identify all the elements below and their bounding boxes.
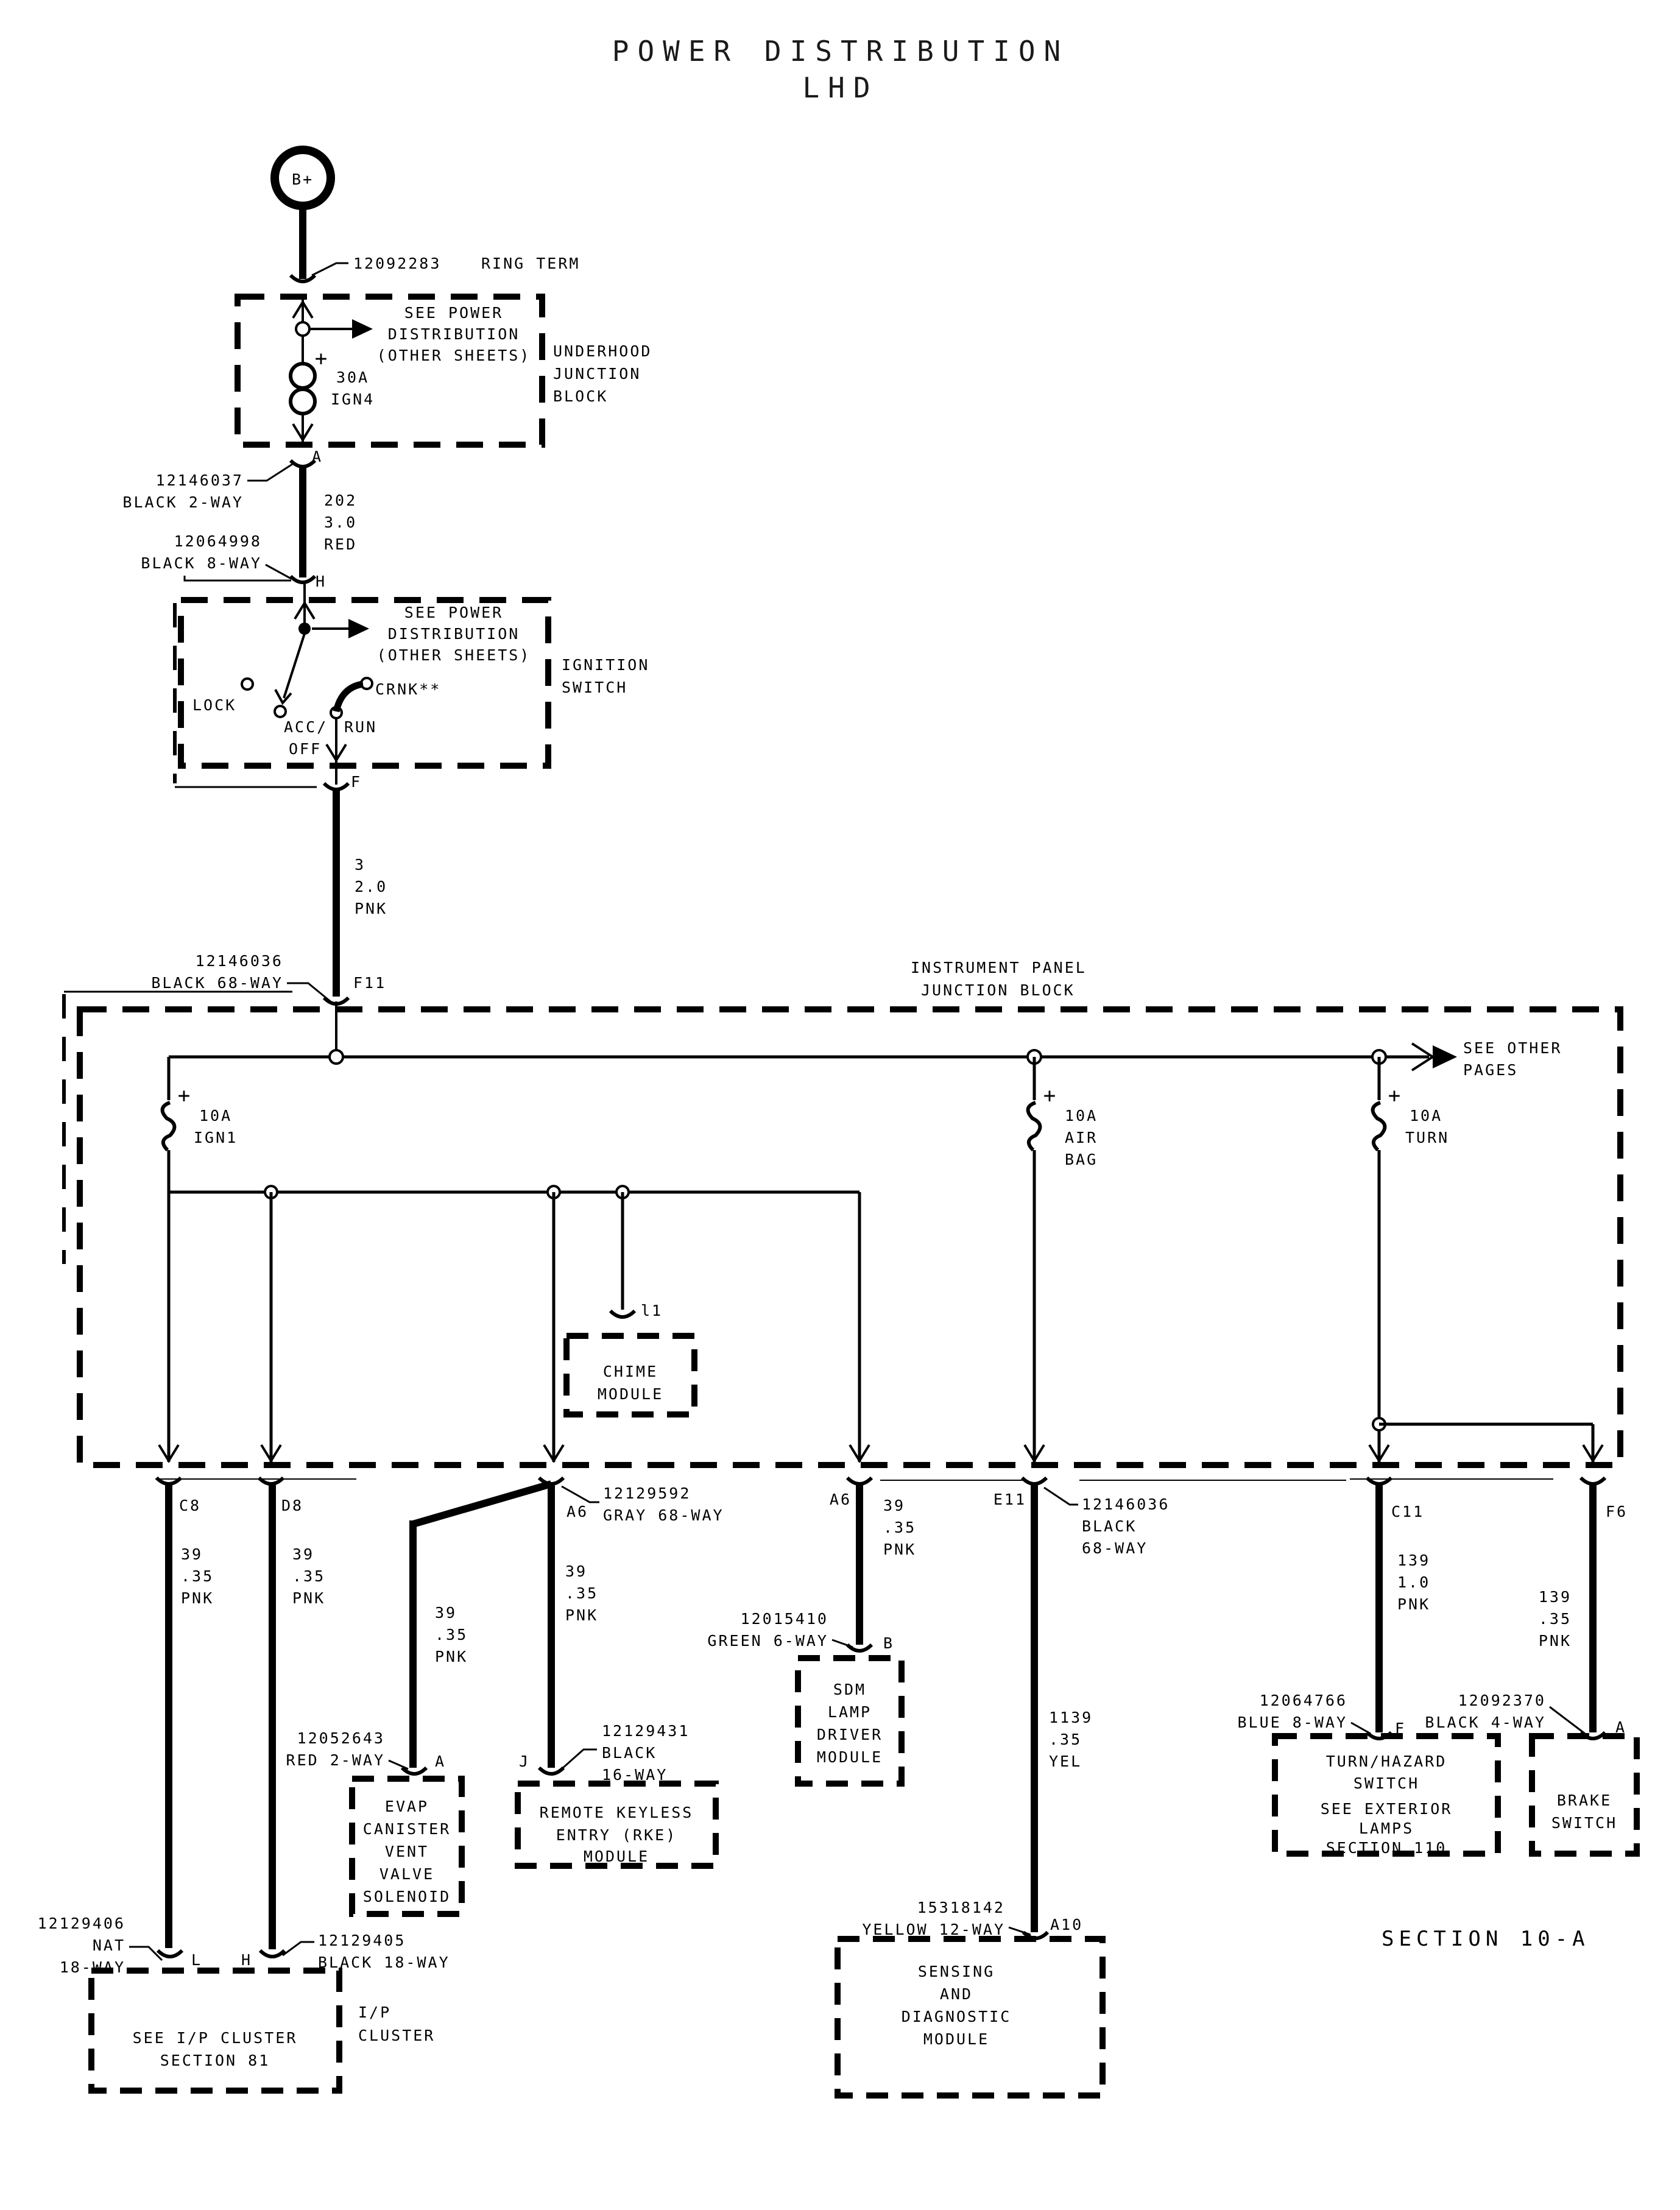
see-other-pages: SEE OTHER	[1463, 1039, 1562, 1057]
fuse-turn-amps: 10A	[1410, 1107, 1442, 1124]
pin-e11-label: E11	[994, 1491, 1026, 1508]
conn-f11-desc: BLACK 68-WAY	[151, 974, 283, 992]
pin-a6-label: A6	[566, 1503, 588, 1520]
svg-text:.35: .35	[292, 1567, 325, 1585]
svg-text:ENTRY (RKE): ENTRY (RKE)	[556, 1826, 677, 1844]
svg-text:DISTRIBUTION: DISTRIBUTION	[388, 625, 520, 643]
svg-text:39: 39	[883, 1497, 905, 1514]
conn-12064766-desc: BLUE 8-WAY	[1237, 1714, 1347, 1731]
leader-line	[266, 565, 291, 579]
ignition-name: IGNITION	[562, 656, 649, 674]
pin-l1-label: l1	[641, 1302, 663, 1319]
underhood-name: UNDERHOOD	[553, 342, 652, 360]
switch-blade	[336, 684, 363, 711]
svg-text:PNK: PNK	[883, 1541, 916, 1558]
wiring-diagram-page: POWER DISTRIBUTION LHD B+ 12092283 RING …	[0, 0, 1680, 2210]
svg-text:PNK: PNK	[1539, 1632, 1572, 1650]
svg-text:EVAP: EVAP	[385, 1798, 429, 1815]
conn-15318142-desc: YELLOW 12-WAY	[862, 1921, 1005, 1938]
svg-text:LAMP: LAMP	[828, 1703, 872, 1721]
branch-c11: C11 139 1.0 PNK 12064766 BLUE 8-WAY F TU…	[1237, 1478, 1553, 1857]
conn-12052643-part: 12052643	[297, 1729, 385, 1747]
fuse-turn-name: TURN	[1405, 1129, 1449, 1146]
wire-3-color: PNK	[355, 900, 387, 917]
conn-12129592-part: 12129592	[603, 1485, 691, 1502]
svg-text:SECTION 81: SECTION 81	[160, 2052, 270, 2069]
plus-icon: +	[315, 347, 327, 371]
pin-a10-label: A10	[1050, 1916, 1083, 1933]
svg-text:PNK: PNK	[435, 1648, 468, 1665]
svg-text:PNK: PNK	[565, 1606, 598, 1624]
ipjb-name: INSTRUMENT PANEL	[911, 959, 1087, 976]
svg-text:MODULE: MODULE	[817, 1748, 883, 1766]
svg-text:NAT: NAT	[93, 1936, 125, 1954]
conn-12015410-part: 12015410	[741, 1610, 828, 1628]
svg-text:39: 39	[565, 1562, 587, 1580]
svg-text:DISTRIBUTION: DISTRIBUTION	[388, 325, 520, 343]
ring-term-leader	[312, 263, 348, 275]
conn-12129405-part: 12129405	[318, 1932, 406, 1949]
run-label: RUN	[344, 718, 377, 736]
leader-line	[562, 1749, 597, 1769]
ring-term-part: 12092283	[353, 255, 441, 272]
branch-f6: F6 139 .35 PNK 12092370 BLACK 4-WAY A BR…	[1425, 1478, 1637, 1854]
fuse-30a-name: IGN4	[331, 390, 375, 408]
svg-text:.35: .35	[1049, 1731, 1082, 1748]
plus-icon: +	[1043, 1084, 1056, 1108]
conn-12129431-part: 12129431	[602, 1722, 690, 1740]
svg-text:BLACK 18-WAY: BLACK 18-WAY	[318, 1954, 450, 1971]
svg-text:BLOCK: BLOCK	[553, 387, 608, 405]
arrow-right-icon	[348, 619, 369, 638]
svg-text:SWITCH: SWITCH	[562, 679, 627, 696]
pin-j-label: J	[519, 1753, 530, 1770]
svg-text:BAG: BAG	[1065, 1151, 1098, 1168]
svg-text:SWITCH: SWITCH	[1551, 1814, 1617, 1832]
evap-solenoid: 12052643 RED 2-WAY A EVAP CANISTER VENT …	[286, 1729, 462, 1914]
conn-12064766-part: 12064766	[1260, 1692, 1347, 1709]
svg-text:BRAKE: BRAKE	[1557, 1792, 1612, 1809]
svg-text:REMOTE KEYLESS: REMOTE KEYLESS	[540, 1804, 694, 1821]
svg-text:CLUSTER: CLUSTER	[358, 2027, 435, 2044]
branch-e11: E11 12146036 BLACK 68-WAY 1139 .35 YEL 1…	[838, 1478, 1346, 2095]
svg-text:AND: AND	[940, 1985, 973, 2003]
rke-module: J 12129431 BLACK 16-WAY REMOTE KEYLESS E…	[518, 1722, 716, 1866]
conn-15318142-part: 15318142	[917, 1899, 1005, 1916]
fuse-30a-amps: 30A	[336, 369, 369, 386]
pin-a6-label: A6	[830, 1491, 852, 1508]
svg-text:SECTION 110: SECTION 110	[1326, 1839, 1447, 1857]
off-label: OFF	[289, 740, 322, 758]
pin-h-label: H	[241, 1951, 252, 1969]
svg-text:PAGES: PAGES	[1463, 1061, 1518, 1079]
arrow-right-icon	[1433, 1045, 1457, 1068]
svg-text:139: 139	[1539, 1588, 1572, 1606]
svg-text:MODULE: MODULE	[923, 2030, 989, 2048]
svg-text:.35: .35	[1539, 1610, 1572, 1628]
svg-text:PNK: PNK	[181, 1589, 214, 1607]
svg-text:VALVE: VALVE	[379, 1865, 434, 1883]
branch-c8-d8: C8 D8 39 .35 PNK 39 .35 PNK	[155, 1478, 356, 1949]
svg-text:CANISTER: CANISTER	[363, 1820, 451, 1838]
section-label: SECTION 10-A	[1382, 1927, 1590, 1951]
acc-label: ACC/	[284, 718, 328, 736]
conn-12015410-desc: GREEN 6-WAY	[707, 1632, 828, 1650]
ipjb-box	[80, 1009, 1620, 1465]
pin-d8-label: D8	[281, 1497, 303, 1514]
see-power-note: SEE POWER	[404, 304, 503, 322]
pin-f11-label: F11	[353, 974, 386, 992]
svg-text:PNK: PNK	[1397, 1595, 1430, 1613]
svg-text:.35: .35	[435, 1626, 468, 1643]
page-subtitle: LHD	[802, 71, 878, 104]
crank-label: CRNK**	[375, 680, 441, 698]
svg-text:SENSING: SENSING	[918, 1963, 995, 1980]
svg-text:1139: 1139	[1049, 1709, 1093, 1726]
arrow-right-icon	[352, 319, 373, 339]
chime-name: CHIME	[603, 1363, 658, 1380]
lock-contact	[242, 679, 253, 690]
leader-line	[129, 1947, 162, 1960]
svg-text:39: 39	[435, 1604, 457, 1622]
bus-junction	[330, 1050, 343, 1064]
wire-202-circuit: 202	[324, 492, 357, 509]
ip-cluster: 12129406 NAT 18-WAY L H 12129405 BLACK 1…	[38, 1915, 450, 2091]
leader-line	[562, 1486, 599, 1502]
fuse-ign1-amps: 10A	[199, 1107, 232, 1124]
pin-f6-label: F6	[1606, 1503, 1628, 1520]
battery-terminal-label: B+	[292, 171, 314, 188]
svg-text:(OTHER SHEETS): (OTHER SHEETS)	[377, 646, 531, 664]
plus-icon: +	[1388, 1084, 1400, 1108]
svg-text:39: 39	[181, 1545, 203, 1563]
conn-12064998-desc: BLACK 8-WAY	[141, 554, 262, 572]
conn-12092370-desc: BLACK 4-WAY	[1425, 1714, 1546, 1731]
svg-text:.35: .35	[883, 1519, 916, 1536]
conn-12146037-part: 12146037	[156, 471, 244, 489]
wire-3-circuit: 3	[355, 856, 365, 874]
conn-12146037-desc: BLACK 2-WAY	[122, 493, 244, 511]
leader-line	[247, 464, 292, 481]
leader-line	[1044, 1488, 1078, 1505]
leader-line	[389, 1760, 408, 1769]
acc-contact	[275, 706, 286, 717]
fuse-icon	[163, 1103, 175, 1150]
conn-f11-part: 12146036	[196, 952, 283, 970]
conn-12092370-part: 12092370	[1458, 1692, 1546, 1709]
fuse-icon	[1028, 1103, 1040, 1150]
fuse-ign1-name: IGN1	[194, 1129, 238, 1146]
underhood-junction-block: SEE POWER DISTRIBUTION (OTHER SHEETS) + …	[238, 297, 652, 465]
svg-text:DRIVER: DRIVER	[817, 1726, 883, 1743]
fuse-element-icon	[291, 364, 315, 388]
svg-text:(OTHER SHEETS): (OTHER SHEETS)	[377, 347, 531, 364]
wire-202-gauge: 3.0	[324, 514, 357, 531]
connector-l-icon	[158, 1951, 182, 1957]
connector-b-icon	[847, 1645, 872, 1651]
pin-b-label: B	[883, 1634, 894, 1652]
pin-h-label: H	[316, 573, 326, 590]
svg-text:JUNCTION: JUNCTION	[553, 365, 641, 383]
connector-h-icon	[260, 1951, 284, 1957]
conn-12129406-part: 12129406	[38, 1915, 125, 1932]
battery-feed: B+ 12092283 RING TERM	[275, 150, 580, 281]
conn-12146036-part: 12146036	[1082, 1495, 1170, 1513]
plus-icon: +	[178, 1084, 190, 1108]
switch-wiper	[284, 634, 305, 698]
wire-diagonal	[413, 1484, 551, 1524]
svg-text:MODULE: MODULE	[584, 1848, 649, 1865]
fuse-airbag-amps: 10A	[1065, 1107, 1098, 1124]
svg-text:DIAGNOSTIC: DIAGNOSTIC	[902, 2008, 1012, 2025]
svg-text:LAMPS: LAMPS	[1359, 1820, 1414, 1837]
svg-text:139: 139	[1397, 1552, 1430, 1569]
ip-cluster-name: I/P	[358, 2003, 391, 2021]
conn-12129592-desc: GRAY 68-WAY	[603, 1506, 724, 1524]
pin-c8-label: C8	[179, 1497, 201, 1514]
wire-202-red: 12146037 BLACK 2-WAY 202 3.0 RED 1206499…	[122, 461, 357, 590]
see-power-note: SEE POWER	[404, 604, 503, 621]
ignition-switch: SEE POWER DISTRIBUTION (OTHER SHEETS) LO…	[175, 584, 649, 791]
svg-text:SWITCH: SWITCH	[1354, 1774, 1419, 1792]
conn-12052643-desc: RED 2-WAY	[286, 1751, 385, 1769]
pin-f-label: F	[351, 773, 362, 791]
chime-module: CHIME MODULE	[566, 1336, 694, 1414]
connector-j-icon	[539, 1768, 563, 1774]
page-title: POWER DISTRIBUTION	[612, 35, 1070, 68]
ip-junction-block: INSTRUMENT PANEL JUNCTION BLOCK SEE OTHE…	[64, 959, 1620, 1465]
fuse-element-icon	[291, 389, 315, 414]
fuse-icon	[1373, 1103, 1385, 1150]
svg-text:MODULE: MODULE	[598, 1385, 663, 1403]
svg-text:JUNCTION BLOCK: JUNCTION BLOCK	[921, 981, 1075, 999]
svg-text:.35: .35	[565, 1584, 598, 1602]
ring-term-name: RING TERM	[481, 255, 580, 272]
leader-underline	[185, 576, 291, 581]
leader-line	[283, 1942, 314, 1955]
power-distribution-schematic: POWER DISTRIBUTION LHD B+ 12092283 RING …	[0, 0, 1680, 2210]
svg-text:SDM: SDM	[833, 1681, 866, 1698]
junction-dot	[298, 623, 311, 635]
conn-12064998-part: 12064998	[174, 532, 262, 550]
svg-text:SEE EXTERIOR: SEE EXTERIOR	[1321, 1800, 1453, 1818]
svg-text:SEE I/P CLUSTER: SEE I/P CLUSTER	[133, 2029, 298, 2047]
wire-3-gauge: 2.0	[355, 878, 387, 895]
svg-text:.35: .35	[181, 1567, 214, 1585]
svg-text:68-WAY: 68-WAY	[1082, 1539, 1148, 1557]
svg-text:39: 39	[292, 1545, 314, 1563]
wire-202-color: RED	[324, 535, 357, 553]
svg-text:1.0: 1.0	[1397, 1573, 1430, 1591]
svg-text:BLACK: BLACK	[1082, 1517, 1137, 1535]
pin-c11-label: C11	[1391, 1503, 1424, 1520]
fuse-airbag-name: AIR	[1065, 1129, 1098, 1146]
svg-text:YEL: YEL	[1049, 1753, 1082, 1770]
wire-3-pnk: 3 2.0 PNK 12146036 BLACK 68-WAY F11	[151, 789, 387, 1004]
conn-12129431-desc: BLACK	[602, 1744, 657, 1762]
branch-sdm-lamp: A6 39 .35 PNK 12015410 GREEN 6-WAY B SDM…	[707, 1478, 1026, 1784]
connector-l1-icon	[610, 1311, 635, 1317]
leader-line	[1550, 1707, 1585, 1734]
connector-a-icon	[402, 1768, 426, 1774]
pin-a-label: A	[435, 1753, 446, 1770]
svg-text:TURN/HAZARD: TURN/HAZARD	[1326, 1753, 1447, 1770]
lock-label: LOCK	[192, 696, 236, 714]
svg-text:VENT: VENT	[385, 1843, 429, 1860]
pin-l-label: L	[191, 1951, 202, 1969]
svg-text:PNK: PNK	[292, 1589, 325, 1607]
svg-text:SOLENOID: SOLENOID	[363, 1888, 451, 1905]
